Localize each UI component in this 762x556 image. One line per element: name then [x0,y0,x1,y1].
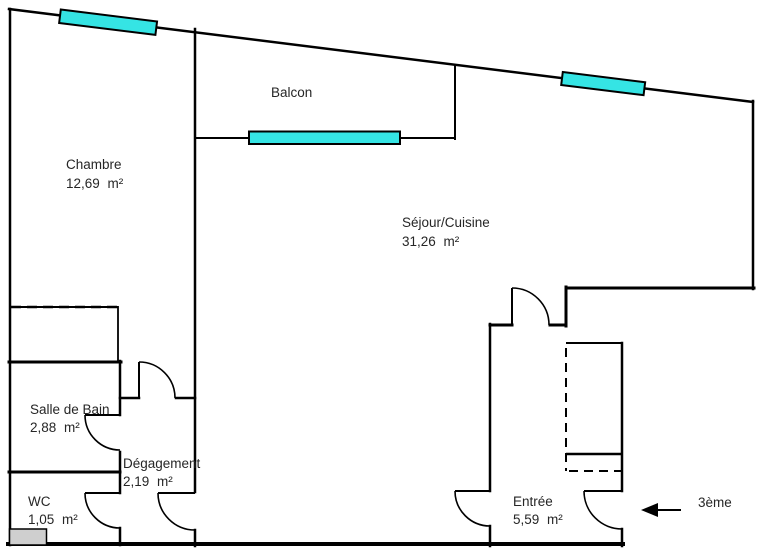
door-chambre [139,362,175,398]
chambre-label: Chambre [66,157,122,172]
interior-walls [9,29,455,546]
chambre-window [59,10,157,35]
wc-fixture-box [10,529,47,545]
entree-closet [566,343,622,471]
door-degagement-sejour [158,493,195,530]
chambre-closet [10,306,118,363]
arrow-head-icon [641,503,658,517]
entree-label: Entrée [513,494,553,509]
sdb-label: Salle de Bain [30,402,110,417]
entrance-arrow [641,503,681,517]
degagement-label: Dégagement [123,456,201,471]
sejour-window [561,72,645,95]
floor-plan-page: Balcon Chambre 12,69 m² Séjour/Cuisine 3… [0,0,762,556]
wc-area: 1,05 m² [28,512,78,527]
degagement-area: 2,19 m² [123,474,173,489]
sdb-area: 2,88 m² [30,420,80,435]
floor-label: 3ème [698,495,732,510]
door-entrance [584,491,622,529]
entree-area: 5,59 m² [513,512,563,527]
balcon-window [249,132,400,145]
balcon-label: Balcon [271,85,312,100]
sejour-label: Séjour/Cuisine [402,215,490,230]
door-wc [85,493,120,528]
door-entree-sejour [455,491,490,526]
door-sejour-entree-top [512,288,549,325]
room-labels: Balcon Chambre 12,69 m² Séjour/Cuisine 3… [28,85,732,527]
door-salle-de-bain [85,415,120,450]
sejour-area: 31,26 m² [402,234,460,249]
chambre-area: 12,69 m² [66,176,124,191]
floor-plan: Balcon Chambre 12,69 m² Séjour/Cuisine 3… [0,0,762,556]
wc-label: WC [28,494,51,509]
